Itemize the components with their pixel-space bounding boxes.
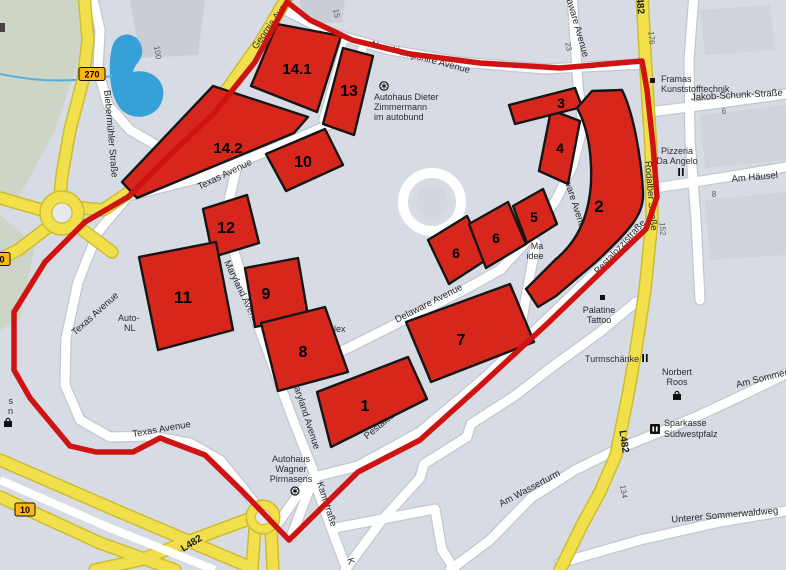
poi-text: Norbert bbox=[662, 367, 693, 377]
poi-marker-icon bbox=[650, 78, 655, 83]
route-badge-text: 270 bbox=[84, 70, 99, 80]
poi-turmschaenke: Turmschänke bbox=[585, 354, 648, 364]
poi-text: s bbox=[9, 396, 14, 406]
poi-text: Turmschänke bbox=[585, 354, 639, 364]
zone-6a-label: 6 bbox=[452, 245, 460, 261]
poi-text: Auto- bbox=[118, 313, 140, 323]
edge-poi-icon bbox=[0, 23, 5, 32]
poi-text: Zimmermann bbox=[374, 102, 427, 112]
poi-text: Südwestpfalz bbox=[664, 429, 718, 439]
zone-5-label: 5 bbox=[530, 209, 538, 225]
house-number-176: 176 bbox=[647, 31, 657, 45]
bank-icon bbox=[650, 424, 660, 434]
zone-12-label: 12 bbox=[217, 220, 235, 237]
zone-6b-label: 6 bbox=[492, 230, 500, 246]
zone-14-2-label: 14.2 bbox=[213, 140, 242, 157]
zone-11-label: 11 bbox=[174, 288, 192, 307]
road-ref-l482: L482 bbox=[633, 0, 646, 15]
poi-text: Framas bbox=[661, 74, 692, 84]
route-badge-270-edge: 270 bbox=[0, 253, 10, 266]
zone-14-1-label: 14.1 bbox=[282, 61, 311, 78]
poi-text: n bbox=[8, 406, 13, 416]
poi-text: Autohaus Dieter bbox=[374, 92, 439, 102]
poi-text: im autobund bbox=[374, 112, 424, 122]
route-badge-text: 10 bbox=[20, 505, 30, 515]
house-number-6: 6 bbox=[722, 107, 727, 116]
poi-text: Palatine bbox=[583, 305, 616, 315]
house-number-152: 152 bbox=[658, 222, 668, 236]
poi-text: Tattoo bbox=[587, 315, 612, 325]
poi-text: Kunststofftechnik bbox=[661, 84, 730, 94]
house-number-8: 8 bbox=[712, 190, 717, 199]
poi-text: Pirmasens bbox=[270, 474, 313, 484]
poi-text: Wagner bbox=[275, 464, 306, 474]
poi-text: idee bbox=[526, 251, 543, 261]
poi-text: Ma bbox=[531, 241, 544, 251]
zone-8-label: 8 bbox=[299, 344, 308, 361]
route-badge-270: 270 bbox=[79, 68, 105, 81]
zone-13-label: 13 bbox=[340, 83, 358, 100]
zone-7-label: 7 bbox=[457, 332, 466, 349]
zone-10-label: 10 bbox=[294, 154, 312, 171]
poi-marker-icon bbox=[600, 295, 605, 300]
route-badge-10: 10 bbox=[15, 503, 35, 516]
zone-4-label: 4 bbox=[556, 140, 564, 156]
zone-9-label: 9 bbox=[262, 286, 271, 303]
poi-text: Autohaus bbox=[272, 454, 311, 464]
zone-3-label: 3 bbox=[557, 95, 565, 111]
route-badge-text: 270 bbox=[0, 255, 5, 265]
zone-1-label: 1 bbox=[361, 398, 370, 415]
poi-text: Pizzeria bbox=[661, 146, 693, 156]
poi-text: Da Angelo bbox=[656, 156, 698, 166]
zone-2-label: 2 bbox=[594, 197, 603, 216]
autohaus-logo-icon bbox=[380, 82, 388, 90]
poi-text: Roos bbox=[666, 377, 688, 387]
map-frame: Georgia Avenue Georgia Avenue New Hampsh… bbox=[0, 0, 786, 570]
roundabout-northwest bbox=[46, 197, 78, 229]
city-map: Georgia Avenue Georgia Avenue New Hampsh… bbox=[0, 0, 786, 570]
poi-text: NL bbox=[124, 323, 136, 333]
poi-text: Sparkasse bbox=[664, 418, 707, 428]
autohaus-logo-icon bbox=[291, 487, 299, 495]
poi-lex-fragment: lex bbox=[334, 324, 346, 334]
